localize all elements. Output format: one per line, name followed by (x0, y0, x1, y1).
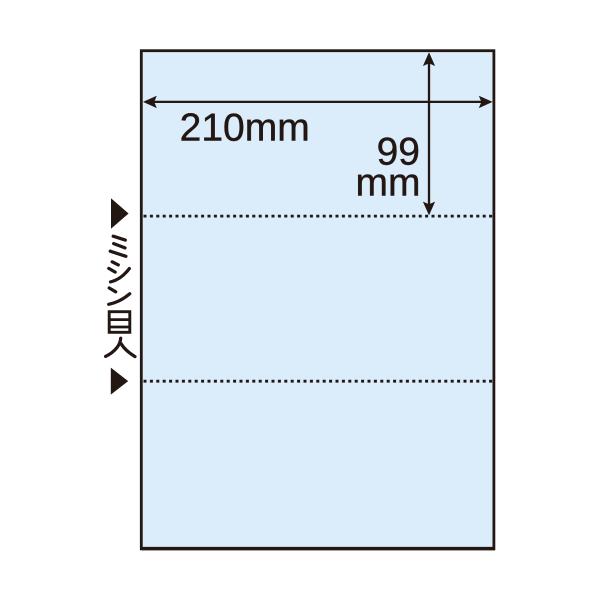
svg-text:mm: mm (356, 162, 421, 205)
svg-text:210mm: 210mm (180, 107, 310, 150)
